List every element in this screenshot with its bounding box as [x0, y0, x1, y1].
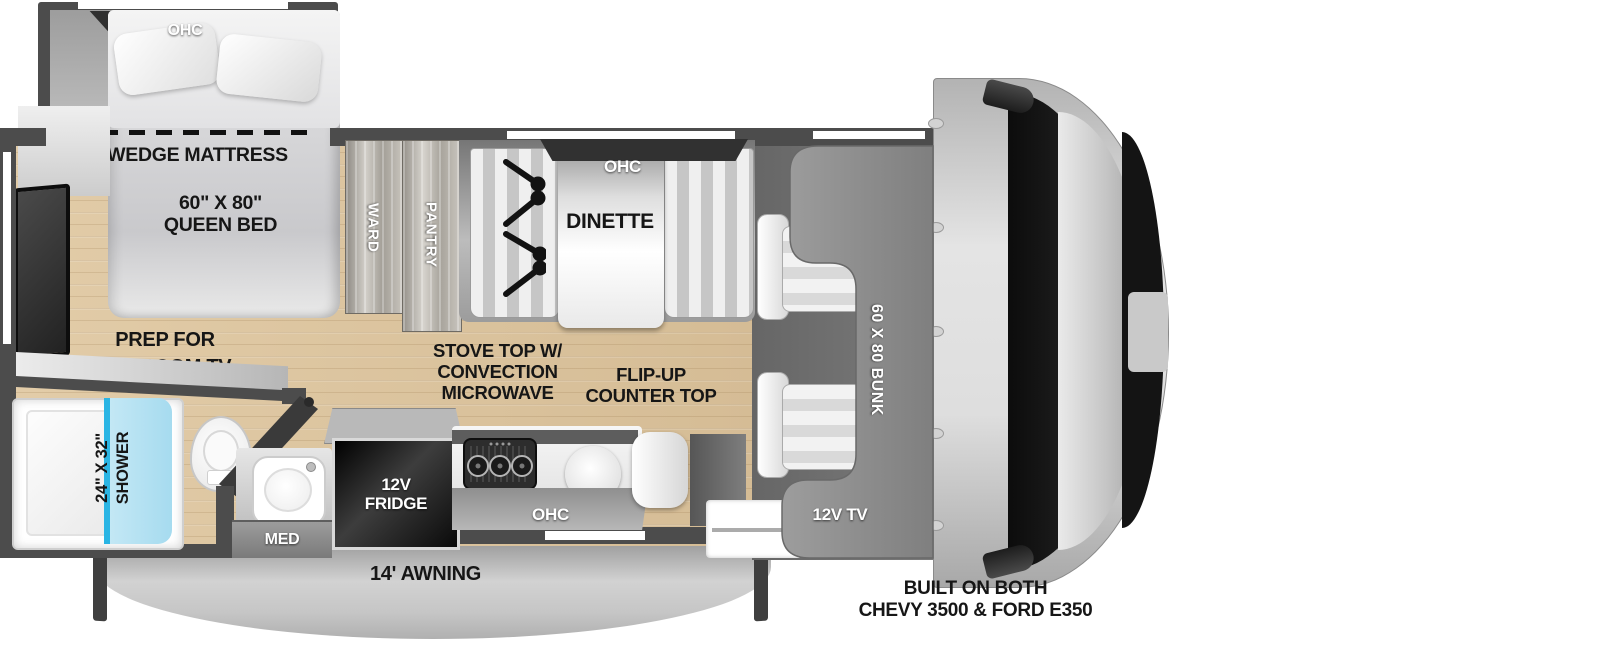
- med-label: MED: [265, 531, 300, 549]
- ward-label: WARD: [345, 148, 401, 308]
- awning-label: 14' AWNING: [323, 563, 528, 585]
- dinette-bench-right: [664, 148, 754, 318]
- rear-dresser: [18, 106, 110, 196]
- dinette-label: DINETTE: [545, 210, 675, 234]
- pillow: [215, 33, 323, 103]
- fridge-label: 12V FRIDGE: [365, 475, 427, 513]
- fridge: 12V FRIDGE: [332, 438, 460, 550]
- dinette-ohc-label: OHC: [590, 157, 655, 176]
- bathroom-sink-basin: [264, 468, 312, 512]
- top-window-galley: [813, 131, 925, 139]
- stove: [463, 438, 537, 490]
- floorplan-canvas: 14' AWNING OHC WEDGE MATTRESS 60" X 80" …: [0, 0, 1600, 647]
- slideout-window: [78, 2, 288, 9]
- bathroom-faucet: [306, 462, 316, 472]
- bedroom-tv-panel: [14, 184, 70, 361]
- table-fold-marks: [498, 152, 546, 297]
- chassis-label: BUILT ON BOTH CHEVY 3500 & FORD E350: [823, 578, 1128, 622]
- queen-bed-label: 60" X 80" QUEEN BED: [128, 192, 313, 236]
- bunk-label: 60 X 80 BUNK: [858, 245, 894, 475]
- bedroom-ohc-label: OHC: [152, 22, 218, 40]
- rear-window: [3, 152, 11, 344]
- flip-up-note-label: FLIP-UP COUNTER TOP: [556, 364, 746, 406]
- wedge-mattress-label: WEDGE MATTRESS: [90, 145, 305, 167]
- clearance-light: [928, 118, 944, 129]
- cab-tv-label: 12V TV: [790, 505, 890, 524]
- top-window-dinette: [507, 131, 735, 139]
- front-bumper-center: [1128, 292, 1168, 372]
- pantry-label: PANTRY: [402, 142, 460, 328]
- bottom-window: [545, 531, 645, 540]
- shower-label: 24" X 32" SHOWER: [92, 398, 136, 538]
- med-cabinet: MED: [232, 520, 332, 558]
- kitchen-ohc-label: OHC: [518, 505, 583, 524]
- cabover-bunk: [770, 140, 940, 565]
- flip-up-counter: [632, 432, 688, 508]
